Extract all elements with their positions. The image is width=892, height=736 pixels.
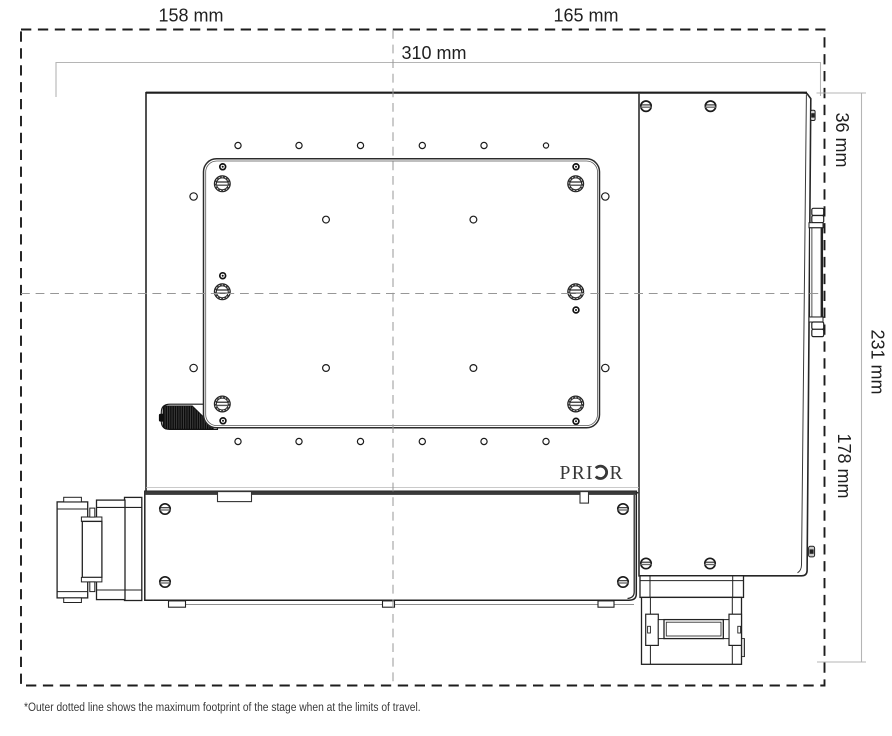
svg-text:*Outer dotted line shows the m: *Outer dotted line shows the maximum foo…	[24, 701, 421, 714]
svg-text:231 mm: 231 mm	[868, 329, 888, 394]
svg-text:178 mm: 178 mm	[834, 433, 854, 498]
svg-text:310 mm: 310 mm	[401, 43, 466, 63]
svg-text:R: R	[572, 463, 586, 484]
svg-text:I: I	[586, 463, 593, 484]
svg-text:165 mm: 165 mm	[553, 6, 618, 26]
svg-text:P: P	[560, 463, 571, 484]
svg-text:36 mm: 36 mm	[832, 112, 852, 167]
svg-text:R: R	[610, 463, 624, 484]
svg-text:158 mm: 158 mm	[158, 6, 223, 26]
